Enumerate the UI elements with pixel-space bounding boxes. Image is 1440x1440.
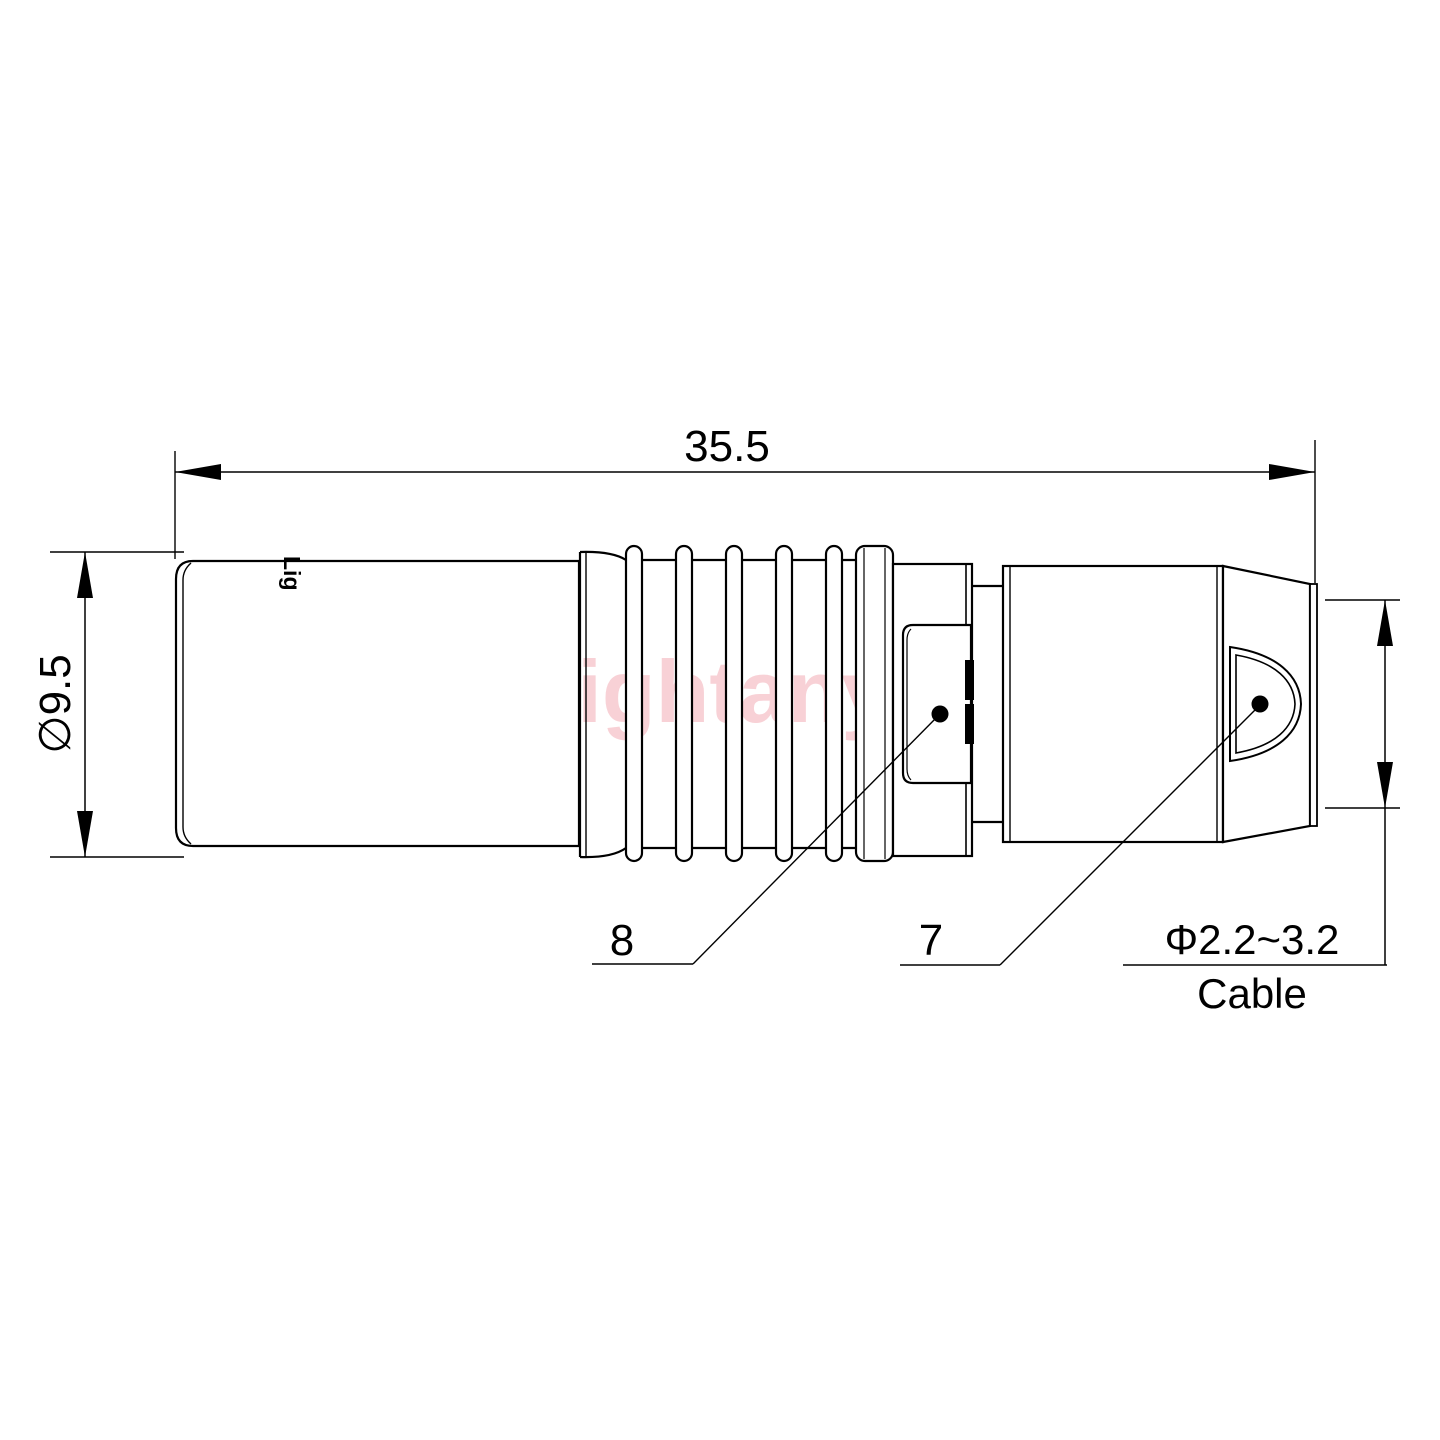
bellows-rib-4: [776, 546, 792, 861]
callout-8-dot: [932, 706, 949, 723]
rear-nut: [1003, 566, 1223, 842]
bellows-rib-5: [826, 546, 842, 861]
collar-bottom-edge: [580, 848, 626, 857]
callout-7-dot: [1252, 696, 1269, 713]
length-arrow-right: [1269, 464, 1315, 480]
bellows-rib-1: [626, 546, 642, 861]
latch-slot-upper: [965, 660, 974, 700]
cable-word-text: Cable: [1197, 970, 1307, 1017]
latch-plate: [903, 625, 971, 783]
bellows-rib-2: [676, 546, 692, 861]
front-shell-outline: [176, 561, 579, 846]
technical-drawing-page: Lightany: [0, 0, 1440, 1440]
collar-top-edge: [580, 552, 626, 560]
overall-length-text: 35.5: [684, 422, 770, 471]
bellows-end-flange: [856, 546, 893, 861]
bellows-rib-3: [726, 546, 742, 861]
diameter-arrow-bottom: [77, 811, 93, 857]
cable-diameter-text: Φ2.2~3.2: [1165, 916, 1340, 963]
body-diameter-text: ∅9.5: [31, 654, 80, 754]
cable-arrow-down: [1377, 762, 1393, 808]
cone-rim: [1310, 584, 1317, 826]
latch-slot-lower: [965, 704, 974, 744]
cable-arrow-up: [1377, 600, 1393, 646]
connector-drawing: Lightany: [0, 0, 1440, 1440]
diameter-arrow-top: [77, 552, 93, 598]
body-engraving-text: Lig: [279, 556, 305, 591]
length-arrow-left: [175, 464, 221, 480]
position-7-text: 7: [919, 916, 943, 965]
position-8-text: 8: [610, 916, 634, 965]
